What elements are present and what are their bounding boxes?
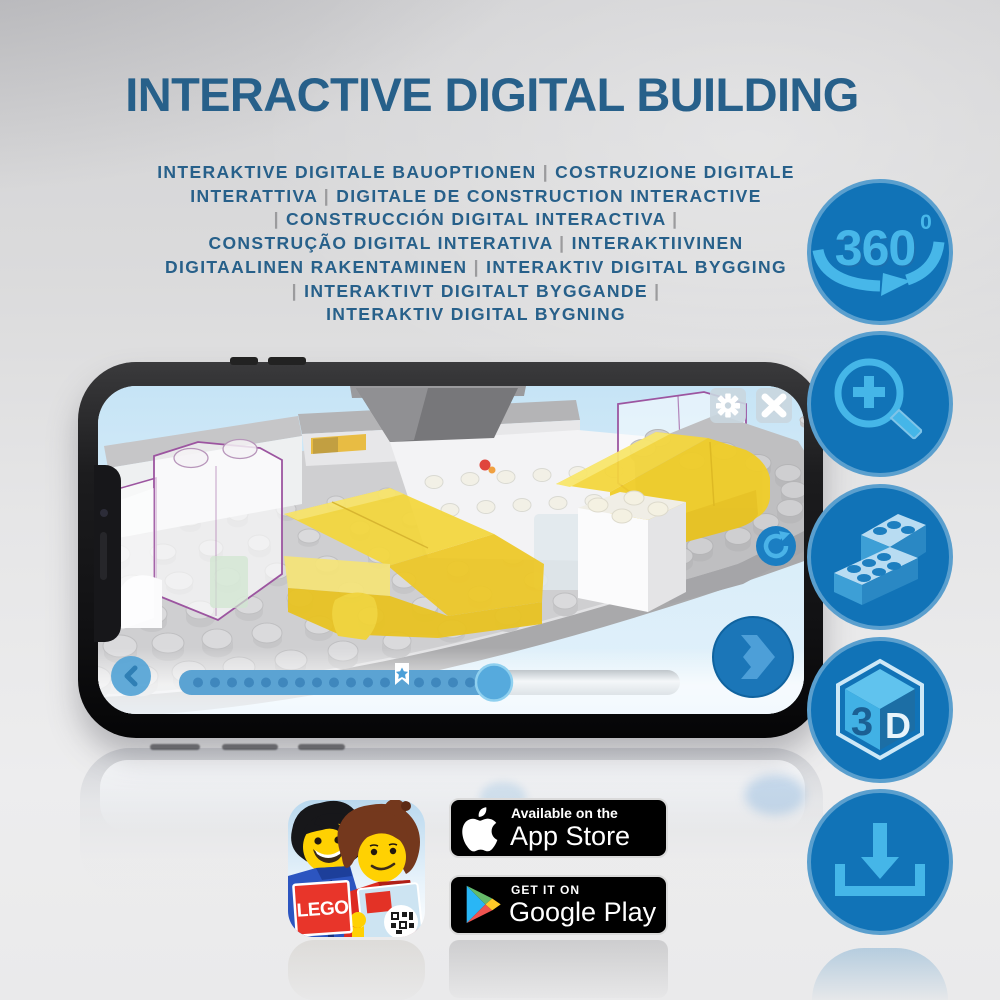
- svg-text:Available on the: Available on the: [511, 805, 618, 821]
- svg-text:3: 3: [851, 700, 873, 744]
- svg-text:D: D: [885, 705, 911, 746]
- svg-text:App Store: App Store: [510, 821, 630, 851]
- svg-text:LEGO: LEGO: [296, 897, 349, 922]
- svg-text:GET IT ON: GET IT ON: [511, 883, 580, 897]
- svg-text:0: 0: [920, 211, 932, 234]
- svg-text:360: 360: [835, 220, 915, 276]
- svg-text:Google Play: Google Play: [509, 897, 657, 927]
